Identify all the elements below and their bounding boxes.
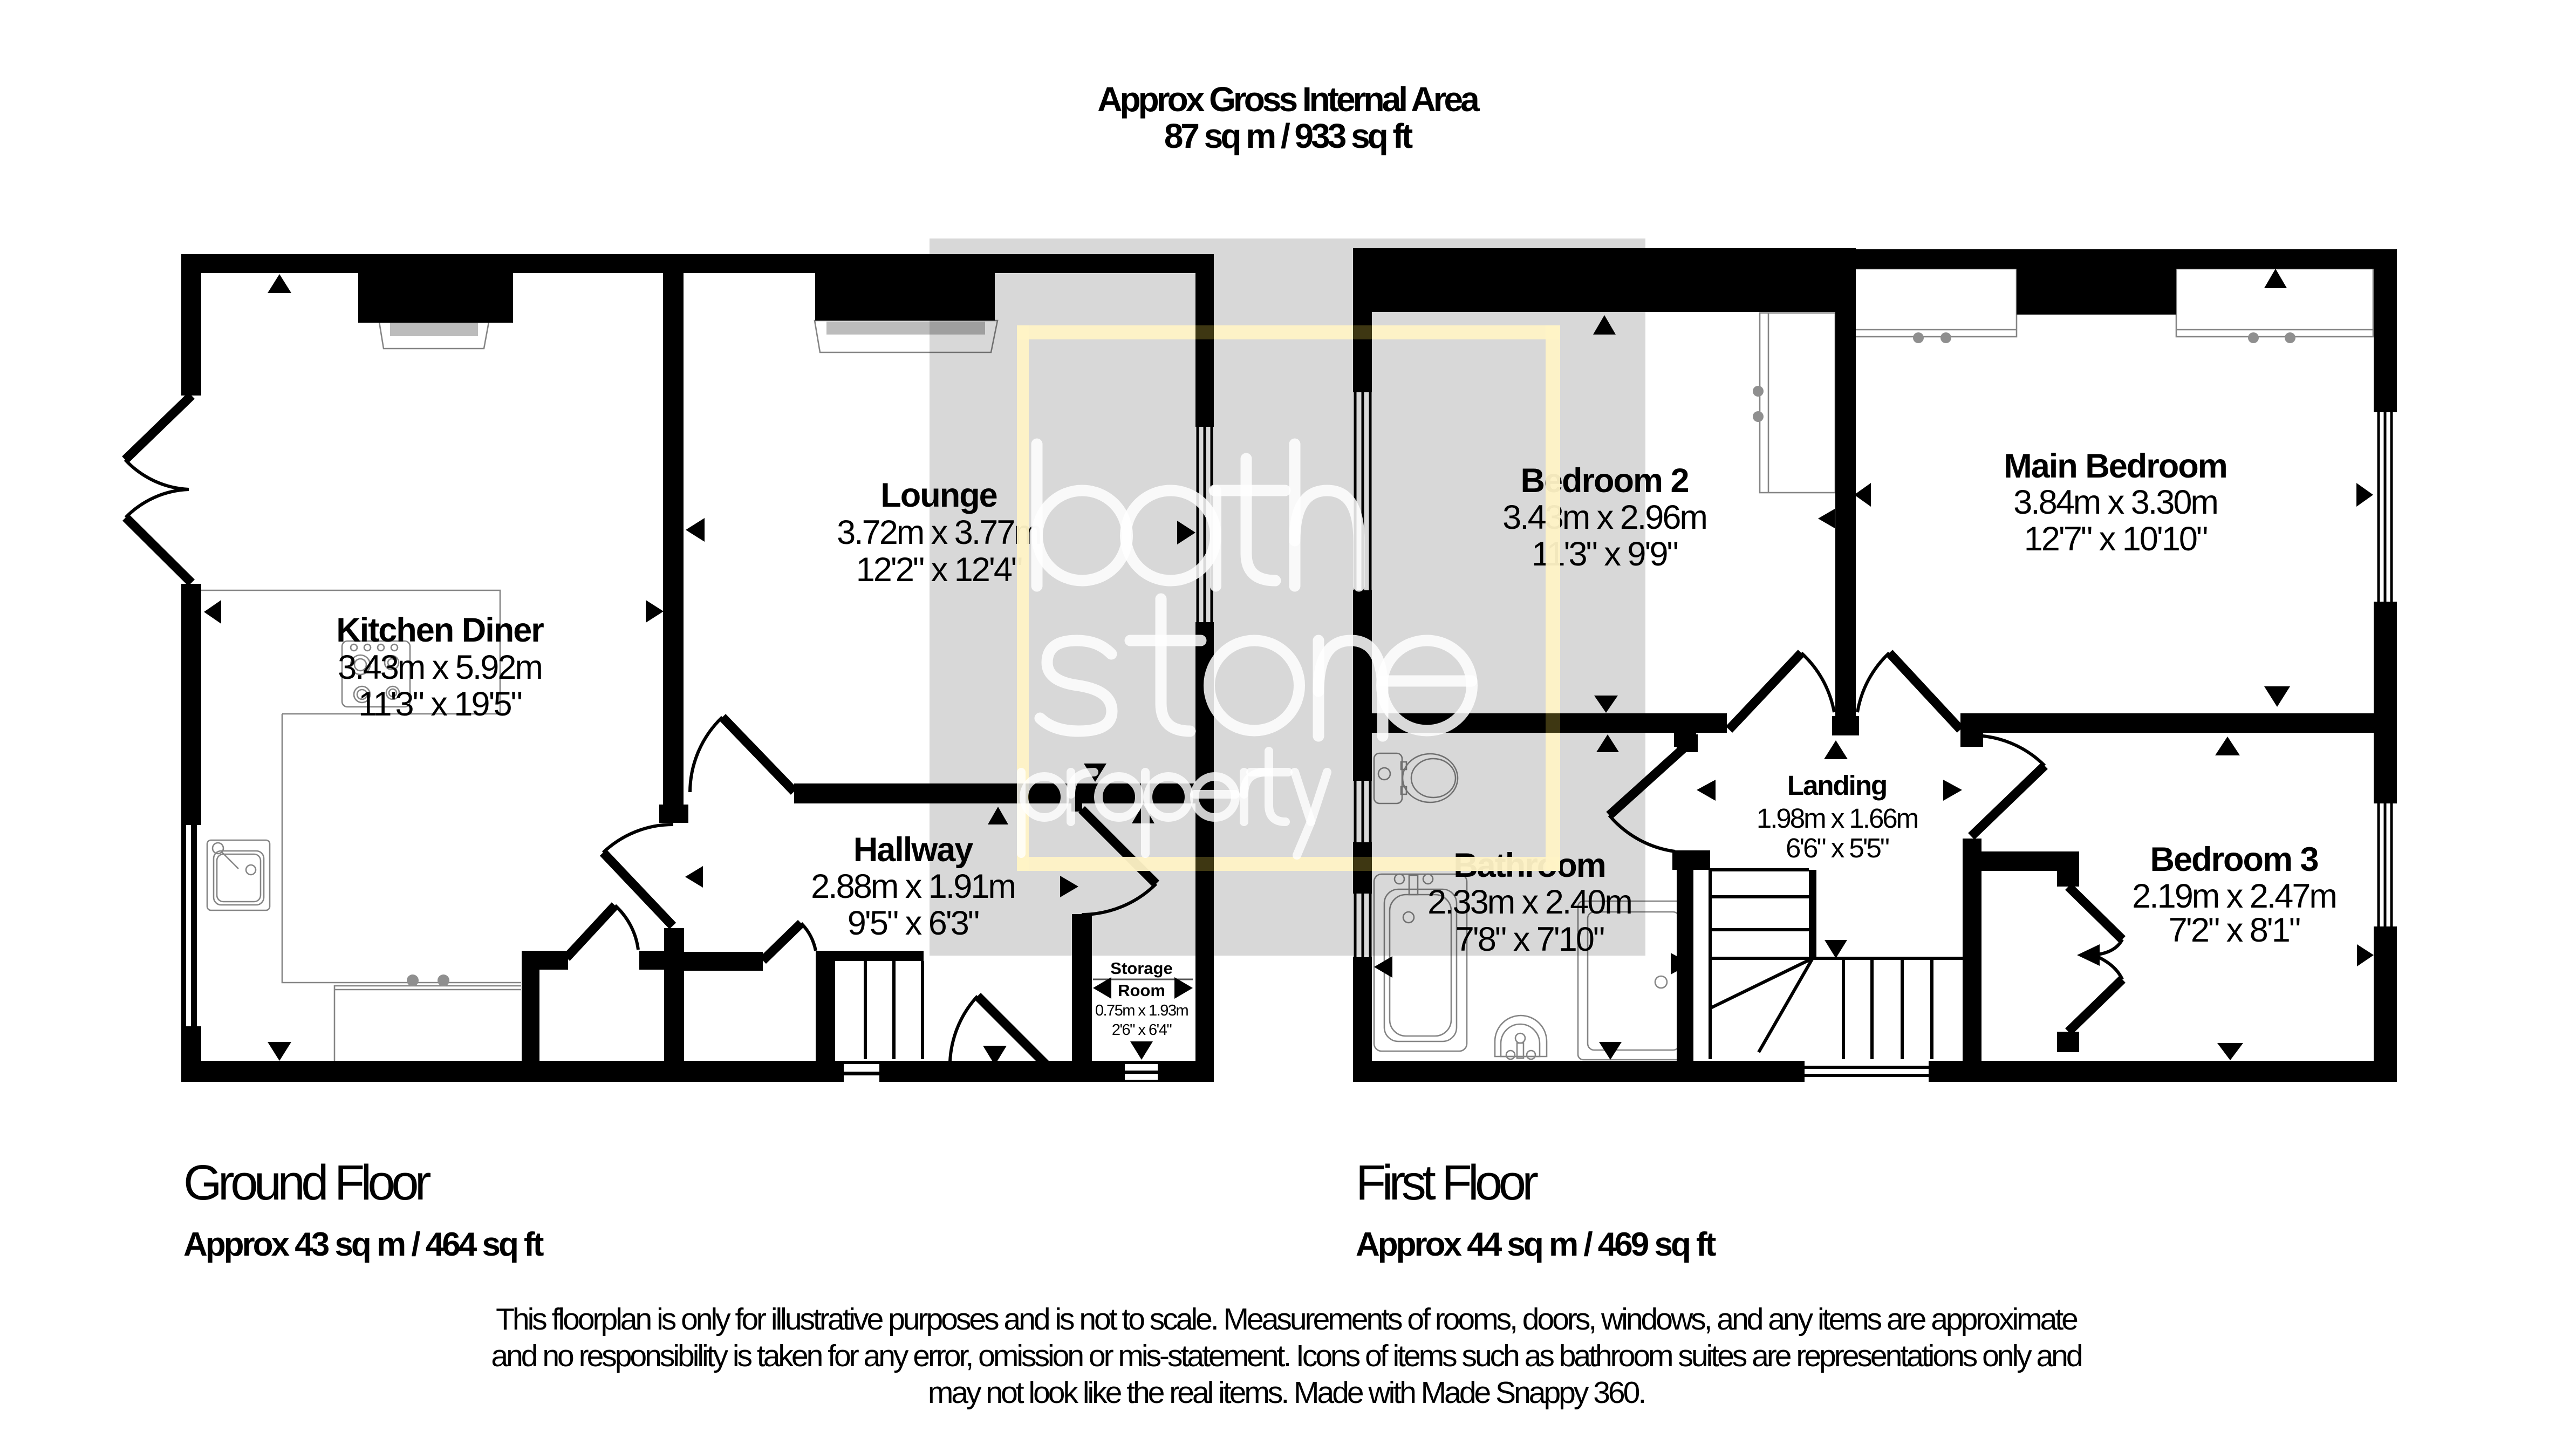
svg-text:and no responsibility is taken: and no responsibility is taken for any e…	[491, 1339, 2081, 1373]
svg-text:Ground Floor: Ground Floor	[183, 1155, 431, 1210]
svg-text:Bedroom 3: Bedroom 3	[2150, 841, 2318, 878]
svg-text:3.84m x 3.30m: 3.84m x 3.30m	[2013, 483, 2217, 521]
svg-text:Approx 44 sq m / 469 sq ft: Approx 44 sq m / 469 sq ft	[1356, 1226, 1716, 1263]
svg-text:Approx Gross Internal Area: Approx Gross Internal Area	[1097, 80, 1480, 119]
svg-text:6'6" x 5'5": 6'6" x 5'5"	[1786, 833, 1889, 863]
svg-text:This floorplan is only for ill: This floorplan is only for illustrative …	[496, 1302, 2078, 1337]
svg-text:Landing: Landing	[1787, 770, 1887, 801]
svg-text:1.98m x 1.66m: 1.98m x 1.66m	[1757, 803, 1918, 834]
svg-text:Room: Room	[1118, 981, 1165, 1000]
svg-text:Kitchen Diner: Kitchen Diner	[336, 611, 544, 649]
svg-text:87 sq m / 933 sq ft: 87 sq m / 933 sq ft	[1164, 117, 1413, 155]
svg-text:11'3" x 19'5": 11'3" x 19'5"	[358, 685, 521, 723]
svg-text:0.75m x 1.93m: 0.75m x 1.93m	[1095, 1002, 1188, 1019]
svg-text:3.43m x 5.92m: 3.43m x 5.92m	[338, 649, 542, 686]
svg-text:Approx 43 sq m / 464 sq ft: Approx 43 sq m / 464 sq ft	[183, 1226, 544, 1263]
svg-text:7'2" x 8'1": 7'2" x 8'1"	[2169, 911, 2300, 949]
svg-text:2'6" x 6'4": 2'6" x 6'4"	[1112, 1021, 1172, 1039]
svg-text:First Floor: First Floor	[1356, 1155, 1538, 1210]
svg-text:Storage: Storage	[1110, 959, 1172, 978]
svg-text:2.19m x 2.47m: 2.19m x 2.47m	[2132, 877, 2336, 915]
svg-text:may not look like the real ite: may not look like the real items. Made w…	[928, 1375, 1644, 1410]
svg-text:12'7" x 10'10": 12'7" x 10'10"	[2024, 520, 2207, 558]
svg-text:Main Bedroom: Main Bedroom	[2004, 447, 2227, 485]
